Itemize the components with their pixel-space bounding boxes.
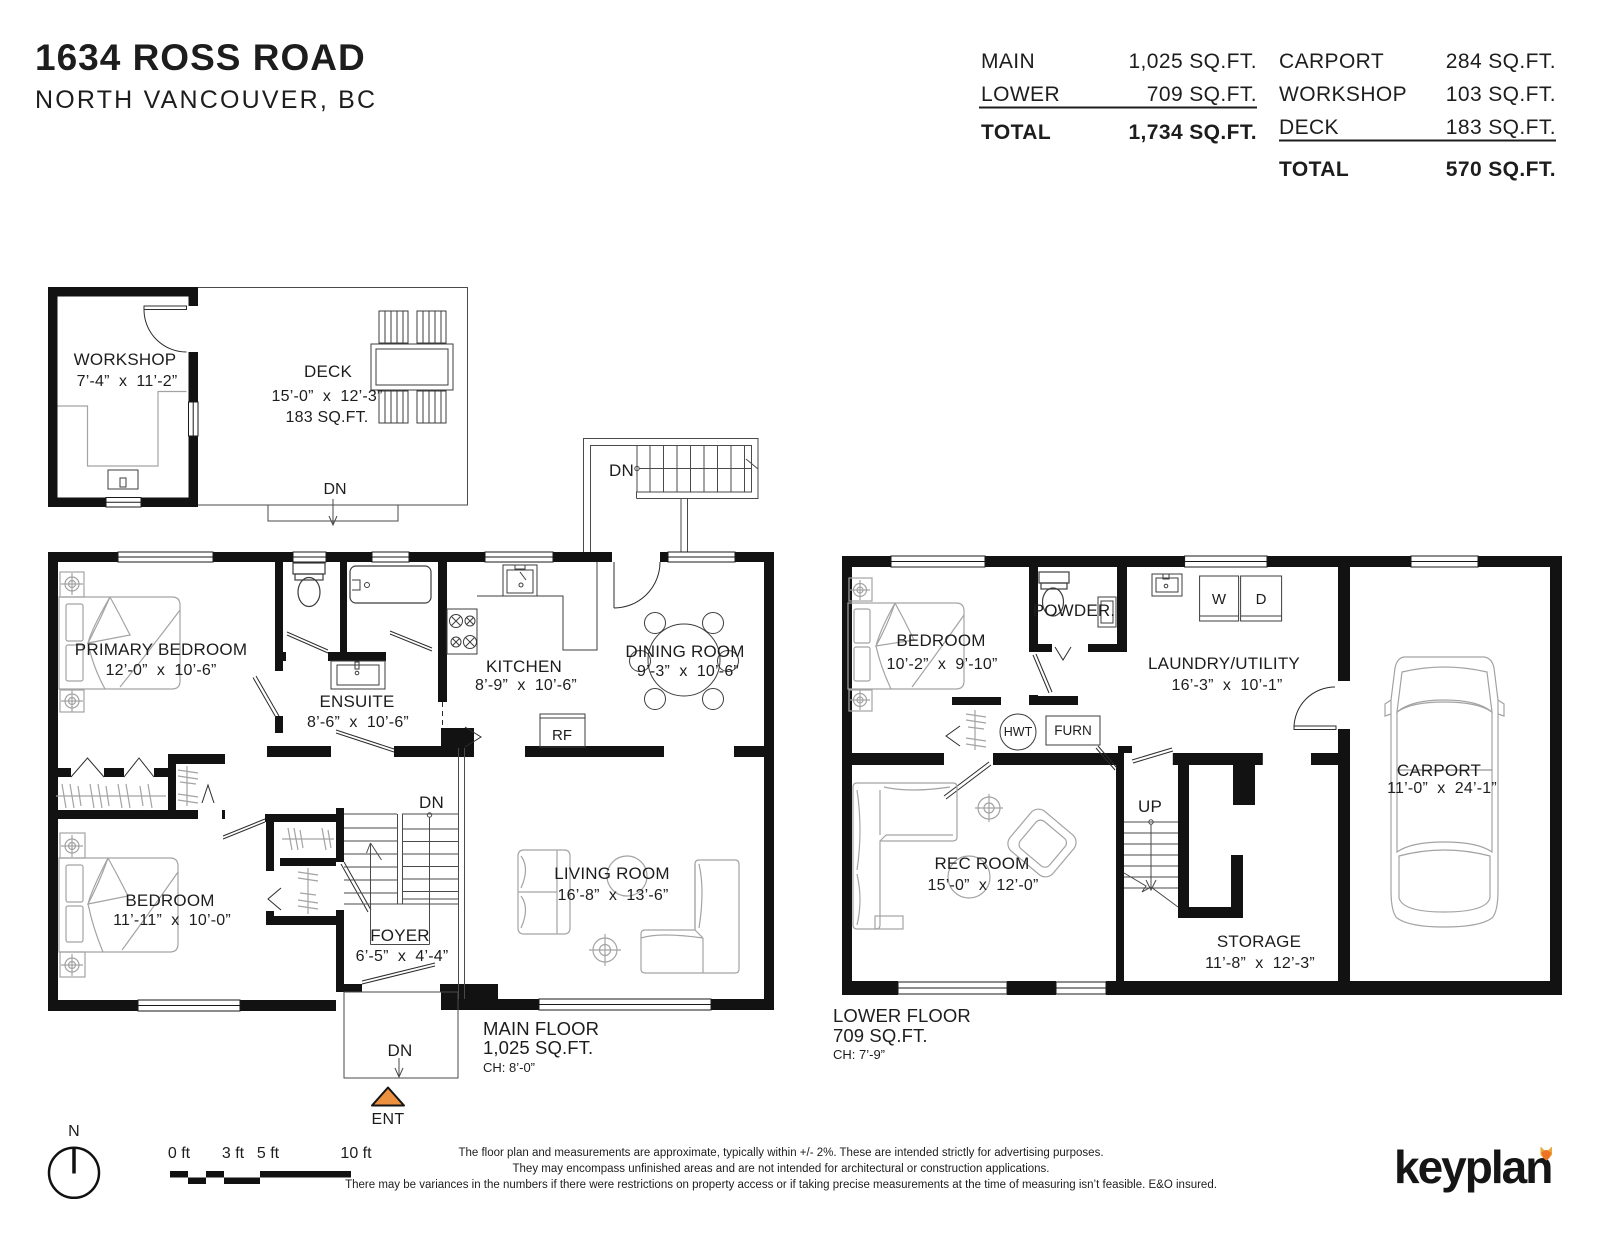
svg-text:CARPORT: CARPORT bbox=[1397, 761, 1481, 780]
svg-text:DN: DN bbox=[609, 461, 634, 480]
svg-text:DN: DN bbox=[323, 481, 346, 498]
svg-text:KITCHEN: KITCHEN bbox=[486, 657, 562, 676]
svg-text:8’-6” x 10’-6”: 8’-6” x 10’-6” bbox=[307, 714, 409, 731]
svg-text:16’-8” x 13’-6”: 16’-8” x 13’-6” bbox=[558, 887, 669, 904]
svg-text:HWT: HWT bbox=[1004, 725, 1033, 739]
svg-text:ENT: ENT bbox=[372, 1111, 405, 1128]
svg-text:POWDER.: POWDER. bbox=[1033, 601, 1116, 620]
svg-text:TOTAL: TOTAL bbox=[981, 121, 1051, 144]
svg-text:1,025 SQ.FT.: 1,025 SQ.FT. bbox=[483, 1037, 593, 1058]
svg-text:CARPORT: CARPORT bbox=[1279, 50, 1384, 73]
svg-text:The floor plan and measurement: The floor plan and measurements are appr… bbox=[458, 1147, 1103, 1159]
svg-text:5 ft: 5 ft bbox=[257, 1145, 280, 1162]
svg-text:NORTH VANCOUVER, BC: NORTH VANCOUVER, BC bbox=[35, 86, 377, 114]
svg-text:10’-2” x 9’-10”: 10’-2” x 9’-10” bbox=[887, 656, 998, 673]
svg-text:MAIN: MAIN bbox=[981, 50, 1035, 73]
svg-text:CH: 8’-0”: CH: 8’-0” bbox=[483, 1060, 535, 1075]
svg-text:9’-3” x 10’-6”: 9’-3” x 10’-6” bbox=[637, 663, 739, 680]
svg-text:LOWER: LOWER bbox=[981, 83, 1060, 106]
svg-text:103 SQ.FT.: 103 SQ.FT. bbox=[1446, 83, 1556, 106]
svg-text:keyplan: keyplan bbox=[1394, 1141, 1551, 1193]
svg-text:There may be variances in the: There may be variances in the numbers if… bbox=[345, 1179, 1217, 1191]
svg-text:WORKSHOP: WORKSHOP bbox=[74, 350, 177, 369]
svg-text:6’-5” x 4’-4”: 6’-5” x 4’-4” bbox=[356, 948, 449, 965]
svg-text:11’-8” x 12’-3”: 11’-8” x 12’-3” bbox=[1205, 955, 1315, 972]
svg-text:3 ft: 3 ft bbox=[222, 1145, 245, 1162]
svg-text:1,025 SQ.FT.: 1,025 SQ.FT. bbox=[1128, 50, 1257, 73]
svg-text:ENSUITE: ENSUITE bbox=[319, 692, 394, 711]
svg-text:UP: UP bbox=[1138, 797, 1162, 816]
svg-text:FURN: FURN bbox=[1054, 723, 1092, 738]
svg-text:7’-4” x 11’-2”: 7’-4” x 11’-2” bbox=[77, 373, 178, 390]
svg-text:N: N bbox=[68, 1123, 80, 1140]
svg-text:STORAGE: STORAGE bbox=[1217, 932, 1301, 951]
svg-text:They may encompass unfinished: They may encompass unfinished areas and … bbox=[513, 1163, 1050, 1175]
svg-text:10 ft: 10 ft bbox=[340, 1145, 372, 1162]
svg-text:FOYER: FOYER bbox=[370, 926, 430, 945]
svg-text:709 SQ.FT.: 709 SQ.FT. bbox=[1147, 83, 1257, 106]
svg-text:183 SQ.FT.: 183 SQ.FT. bbox=[1446, 116, 1556, 139]
svg-text:16’-3” x 10’-1”: 16’-3” x 10’-1” bbox=[1172, 677, 1283, 694]
svg-text:183 SQ.FT.: 183 SQ.FT. bbox=[286, 409, 369, 426]
svg-text:1,734 SQ.FT.: 1,734 SQ.FT. bbox=[1128, 121, 1257, 144]
svg-text:DECK: DECK bbox=[304, 362, 352, 381]
svg-text:DN: DN bbox=[419, 793, 444, 812]
svg-text:DINING ROOM: DINING ROOM bbox=[625, 642, 744, 661]
svg-text:MAIN FLOOR: MAIN FLOOR bbox=[483, 1018, 599, 1039]
svg-text:W: W bbox=[1212, 591, 1227, 608]
svg-text:LIVING ROOM: LIVING ROOM bbox=[554, 864, 670, 883]
svg-text:TOTAL: TOTAL bbox=[1279, 158, 1349, 181]
svg-text:570 SQ.FT.: 570 SQ.FT. bbox=[1446, 158, 1556, 181]
svg-text:284 SQ.FT.: 284 SQ.FT. bbox=[1446, 50, 1556, 73]
svg-text:11’-11” x 10’-0”: 11’-11” x 10’-0” bbox=[113, 912, 231, 929]
svg-text:15’-0” x 12’-3”: 15’-0” x 12’-3” bbox=[272, 388, 383, 405]
svg-text:8’-9” x 10’-6”: 8’-9” x 10’-6” bbox=[475, 677, 577, 694]
svg-text:DN: DN bbox=[388, 1041, 413, 1060]
svg-text:D: D bbox=[1256, 591, 1267, 608]
svg-text:LOWER FLOOR: LOWER FLOOR bbox=[833, 1005, 971, 1026]
svg-text:DECK: DECK bbox=[1279, 116, 1339, 139]
svg-text:11’-0” x 24’-1”: 11’-0” x 24’-1” bbox=[1387, 780, 1497, 797]
svg-text:CH: 7’-9”: CH: 7’-9” bbox=[833, 1047, 885, 1062]
svg-text:1634 ROSS ROAD: 1634 ROSS ROAD bbox=[35, 37, 366, 78]
svg-text:15’-0” x 12’-0”: 15’-0” x 12’-0” bbox=[928, 877, 1039, 894]
svg-text:0 ft: 0 ft bbox=[168, 1145, 191, 1162]
svg-text:RF: RF bbox=[552, 727, 572, 744]
svg-text:REC ROOM: REC ROOM bbox=[934, 854, 1029, 873]
svg-text:WORKSHOP: WORKSHOP bbox=[1279, 83, 1407, 106]
svg-text:LAUNDRY/UTILITY: LAUNDRY/UTILITY bbox=[1148, 654, 1300, 673]
svg-text:12’-0” x 10’-6”: 12’-0” x 10’-6” bbox=[106, 662, 217, 679]
svg-text:PRIMARY BEDROOM: PRIMARY BEDROOM bbox=[75, 640, 247, 659]
svg-text:BEDROOM: BEDROOM bbox=[125, 891, 214, 910]
svg-text:BEDROOM: BEDROOM bbox=[896, 631, 985, 650]
svg-text:709 SQ.FT.: 709 SQ.FT. bbox=[833, 1025, 928, 1046]
